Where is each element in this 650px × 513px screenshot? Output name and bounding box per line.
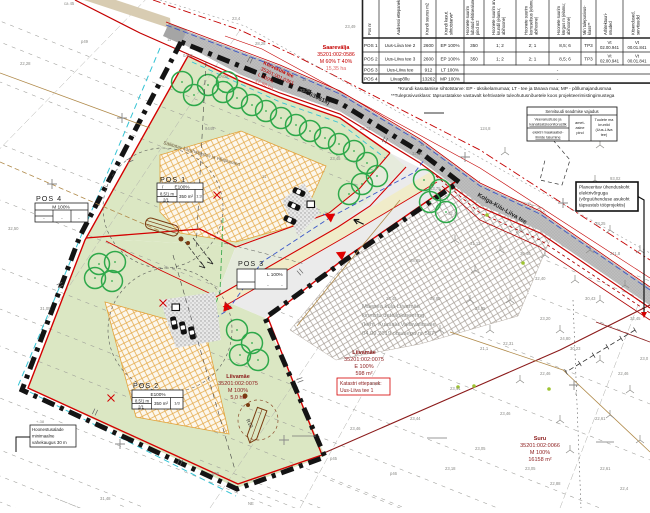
svg-text:8,5/1 m: 8,5/1 m	[135, 399, 149, 404]
svg-text:93,02: 93,02	[610, 176, 621, 181]
svg-text:35201:002:0075: 35201:002:0075	[344, 357, 384, 363]
svg-text:2600: 2600	[423, 43, 434, 48]
svg-text:23,41: 23,41	[450, 386, 461, 391]
svg-text:Krundi suurus m2: Krundi suurus m2	[425, 2, 430, 35]
svg-text:23,20: 23,20	[540, 316, 551, 321]
svg-text:EP 100%: EP 100%	[440, 56, 459, 61]
svg-text:00.01.841: 00.01.841	[627, 45, 647, 50]
svg-text:5,0 ha: 5,0 ha	[230, 395, 246, 401]
svg-text:598 m²: 598 m²	[355, 371, 372, 377]
svg-text:servituudid: servituudid	[635, 14, 640, 35]
svg-text:31,48: 31,48	[100, 496, 111, 501]
svg-text:8,5/1 m: 8,5/1 m	[160, 192, 174, 197]
svg-text:elektrivõrguga: elektrivõrguga	[579, 191, 608, 196]
svg-text:22,61: 22,61	[595, 416, 606, 421]
svg-text:35201:002:0066: 35201:002:0066	[520, 443, 560, 449]
svg-text:30,43: 30,43	[585, 296, 596, 301]
svg-text:abihoone): abihoone)	[501, 16, 506, 35]
svg-text:350 m²: 350 m²	[179, 194, 194, 199]
svg-text:13262: 13262	[422, 76, 435, 81]
svg-text:Hoonestusalade: Hoonestusalade	[32, 427, 64, 432]
svg-text:TP3: TP3	[584, 43, 593, 48]
svg-text:32,40: 32,40	[535, 276, 546, 281]
svg-text:POS 3: POS 3	[238, 259, 264, 268]
svg-text:pind: pind	[576, 131, 583, 135]
svg-text:M 100%: M 100%	[530, 450, 550, 456]
svg-text:Veevarustuse ja: Veevarustuse ja	[534, 118, 562, 122]
svg-text:Planeeritav ühenduskoht: Planeeritav ühenduskoht	[579, 185, 630, 190]
svg-text:pind m2: pind m2	[475, 20, 480, 35]
svg-text:350: 350	[470, 56, 478, 61]
svg-text:(keht. Kuusalu Vallavalitsuse: (keht. Kuusalu Vallavalitsuse	[362, 322, 436, 328]
svg-text:liinide talumine: liinide talumine	[535, 136, 560, 140]
svg-text:täpsustub tööprojektis): täpsustub tööprojektis)	[579, 203, 626, 208]
svg-text:22,46: 22,46	[540, 371, 551, 376]
svg-text:30,40: 30,40	[520, 251, 531, 256]
svg-text:Suru: Suru	[534, 436, 547, 442]
svg-text:E 100%: E 100%	[354, 364, 373, 370]
svg-text:elektri maakaabel-: elektri maakaabel-	[532, 131, 564, 135]
svg-text:Aadressi ettepanek: Aadressi ettepanek	[396, 0, 401, 35]
svg-text:L 100%: L 100%	[267, 272, 283, 277]
svg-text:22,31: 22,31	[503, 341, 514, 346]
svg-text:amet-: amet-	[575, 121, 585, 125]
svg-text:912: 912	[425, 67, 433, 72]
svg-text:Liivamäe: Liivamäe	[226, 374, 250, 380]
svg-text:E100%: E100%	[174, 185, 189, 190]
svg-text:1; 2: 1; 2	[496, 43, 504, 48]
svg-text:23,75: 23,75	[300, 88, 311, 93]
svg-text:11: 11	[262, 174, 267, 179]
svg-text:Liivamäe: Liivamäe	[352, 350, 376, 356]
svg-text:23,18: 23,18	[445, 466, 456, 471]
svg-text:22,88: 22,88	[550, 481, 561, 486]
svg-text:33,75: 33,75	[430, 186, 441, 191]
svg-text:p45: p45	[330, 456, 338, 461]
svg-text:ca 45: ca 45	[64, 1, 75, 6]
svg-text:8,5; 6: 8,5; 6	[559, 43, 571, 48]
svg-text:2; 1: 2; 1	[529, 43, 537, 48]
svg-text:28,85: 28,85	[410, 258, 421, 263]
svg-text:sihtotstarve*: sihtotstarve*	[448, 12, 453, 35]
svg-text:22,61: 22,61	[600, 466, 611, 471]
svg-text:24,80: 24,80	[560, 336, 571, 341]
svg-text:23,45: 23,45	[330, 156, 341, 161]
svg-text:Uus-Liiva tee 2: Uus-Liiva tee 2	[385, 43, 416, 48]
svg-text:minimaalne: minimaalne	[32, 434, 55, 439]
svg-text:p46: p46	[390, 471, 398, 476]
svg-text:23,46: 23,46	[500, 411, 511, 416]
svg-text:00.01.841: 00.01.841	[627, 59, 647, 64]
svg-text:klass**: klass**	[587, 22, 592, 35]
svg-text:2; 1: 2; 1	[529, 56, 537, 61]
svg-text:24,85: 24,85	[475, 306, 486, 311]
svg-text:**Tulepüsivusklass: täpsustata: **Tulepüsivusklass: täpsustatakse vastav…	[391, 93, 615, 98]
svg-text:1; 2: 1; 2	[496, 56, 504, 61]
svg-text:32,50: 32,50	[8, 226, 19, 231]
svg-text:POS 4: POS 4	[364, 76, 378, 81]
svg-text:POS 3: POS 3	[364, 67, 378, 72]
svg-text:MP 100%: MP 100%	[440, 76, 460, 81]
svg-text:POS 2: POS 2	[364, 56, 378, 61]
svg-text:30,23: 30,23	[570, 346, 581, 351]
svg-text:Mäepea küla Liivamäe: Mäepea küla Liivamäe	[362, 304, 420, 310]
svg-text:POS 1: POS 1	[364, 43, 378, 48]
svg-text:vahekaugus 30 m: vahekaugus 30 m	[32, 440, 67, 445]
svg-text:2/1: 2/1	[138, 405, 144, 410]
svg-text:35201:002:0075: 35201:002:0075	[218, 381, 258, 387]
svg-text:TP3: TP3	[584, 56, 593, 61]
svg-text:23,41: 23,41	[370, 381, 381, 386]
svg-text:p46: p46	[212, 471, 220, 476]
svg-text:tee): tee)	[601, 133, 608, 137]
svg-text:02.00.941: 02.00.941	[600, 45, 620, 50]
svg-text:32,85: 32,85	[412, 151, 423, 156]
svg-text:28,28: 28,28	[255, 41, 266, 46]
svg-text:22,28: 22,28	[20, 61, 31, 66]
svg-text:kinnistu detailplaneering: kinnistu detailplaneering	[362, 313, 424, 319]
svg-text:(Uus-Liiva: (Uus-Liiva	[595, 128, 613, 132]
svg-text:kanalisatsioonitorustik: kanalisatsioonitorustik	[529, 123, 566, 127]
svg-text:M 100%: M 100%	[228, 388, 248, 394]
svg-text:32,45: 32,45	[630, 316, 641, 321]
svg-text:abihoone): abihoone)	[533, 16, 538, 35]
svg-text:21,1: 21,1	[480, 346, 489, 351]
svg-text:35201:002:0586: 35201:002:0586	[317, 52, 355, 58]
svg-text:Uus-Liiva tee: Uus-Liiva tee	[387, 67, 414, 72]
svg-text:NE: NE	[248, 501, 254, 506]
svg-text:16158 m²: 16158 m²	[528, 457, 551, 463]
svg-text:28,25: 28,25	[595, 221, 606, 226]
svg-text:04.09.2019 otsusega nr 587): 04.09.2019 otsusega nr 587)	[362, 331, 436, 337]
svg-text:Uus-Liiva tee 3: Uus-Liiva tee 3	[385, 56, 416, 61]
svg-text:Uus-Liiva tee 1: Uus-Liiva tee 1	[340, 388, 374, 394]
svg-text:0A45: 0A45	[183, 53, 193, 58]
svg-text:POS 2: POS 2	[133, 381, 159, 390]
svg-text:15,35 ha: 15,35 ha	[326, 66, 346, 72]
svg-text:0A09: 0A09	[218, 74, 228, 79]
svg-text:abihoone): abihoone)	[566, 16, 571, 35]
svg-text:n6uded: n6uded	[608, 21, 613, 35]
svg-text:E100%: E100%	[150, 392, 165, 397]
svg-text:31,11: 31,11	[470, 241, 481, 246]
svg-text:23,05: 23,05	[475, 446, 486, 451]
svg-text:POS 4: POS 4	[36, 194, 62, 203]
svg-text:211,8: 211,8	[610, 251, 621, 256]
svg-text:22,4: 22,4	[620, 486, 629, 491]
svg-text:*Krundi kasutamise sihtotstarv: *Krundi kasutamise sihtotstarve: EP - ük…	[398, 86, 612, 91]
svg-text:8,5; 6: 8,5; 6	[559, 56, 571, 61]
svg-text:1:3: 1:3	[196, 194, 202, 199]
svg-text:M 60% T 40%: M 60% T 40%	[320, 59, 353, 65]
svg-text:23,45: 23,45	[386, 296, 397, 301]
svg-text:EP 100%: EP 100%	[440, 43, 459, 48]
svg-text:(võrguühenduse asukoht: (võrguühenduse asukoht	[579, 197, 630, 202]
svg-text:2600: 2600	[423, 56, 434, 61]
svg-text:22,46: 22,46	[618, 371, 629, 376]
svg-text:23,4: 23,4	[232, 16, 241, 21]
svg-text:Tuulete ma: Tuulete ma	[595, 118, 615, 122]
svg-text:28,80: 28,80	[430, 296, 441, 301]
svg-text:23,0: 23,0	[640, 356, 649, 361]
svg-text:2/1: 2/1	[163, 198, 169, 203]
svg-text:32,45: 32,45	[448, 211, 459, 216]
svg-text:124,8: 124,8	[480, 126, 491, 131]
svg-text:02.00.941: 02.00.941	[600, 59, 620, 64]
svg-text:350: 350	[470, 43, 478, 48]
svg-text:+-38: +-38	[36, 419, 45, 424]
svg-text:M 100%: M 100%	[52, 205, 70, 211]
svg-text:23,73: 23,73	[360, 126, 371, 131]
svg-text:23,44: 23,44	[410, 416, 421, 421]
svg-text:Pos nr: Pos nr	[367, 23, 372, 35]
svg-text:Liivapõllu: Liivapõllu	[390, 76, 410, 81]
svg-text:LT 100%: LT 100%	[441, 67, 459, 72]
svg-text:Saarevälja: Saarevälja	[323, 45, 351, 51]
svg-text:kruntid: kruntid	[598, 123, 609, 127]
svg-text:31,05: 31,05	[40, 306, 51, 311]
svg-text:9449: 9449	[205, 126, 215, 131]
svg-text:Servituudi seadmise vajadus: Servituudi seadmise vajadus	[545, 109, 598, 114]
svg-text:23,49: 23,49	[345, 24, 356, 29]
svg-text:23,46: 23,46	[350, 426, 361, 431]
svg-text:asine: asine	[575, 126, 584, 130]
svg-text:p49: p49	[81, 39, 89, 44]
svg-text:350 m²: 350 m²	[154, 401, 169, 406]
svg-text:23,05: 23,05	[525, 466, 536, 471]
svg-text:1/3: 1/3	[174, 401, 180, 406]
